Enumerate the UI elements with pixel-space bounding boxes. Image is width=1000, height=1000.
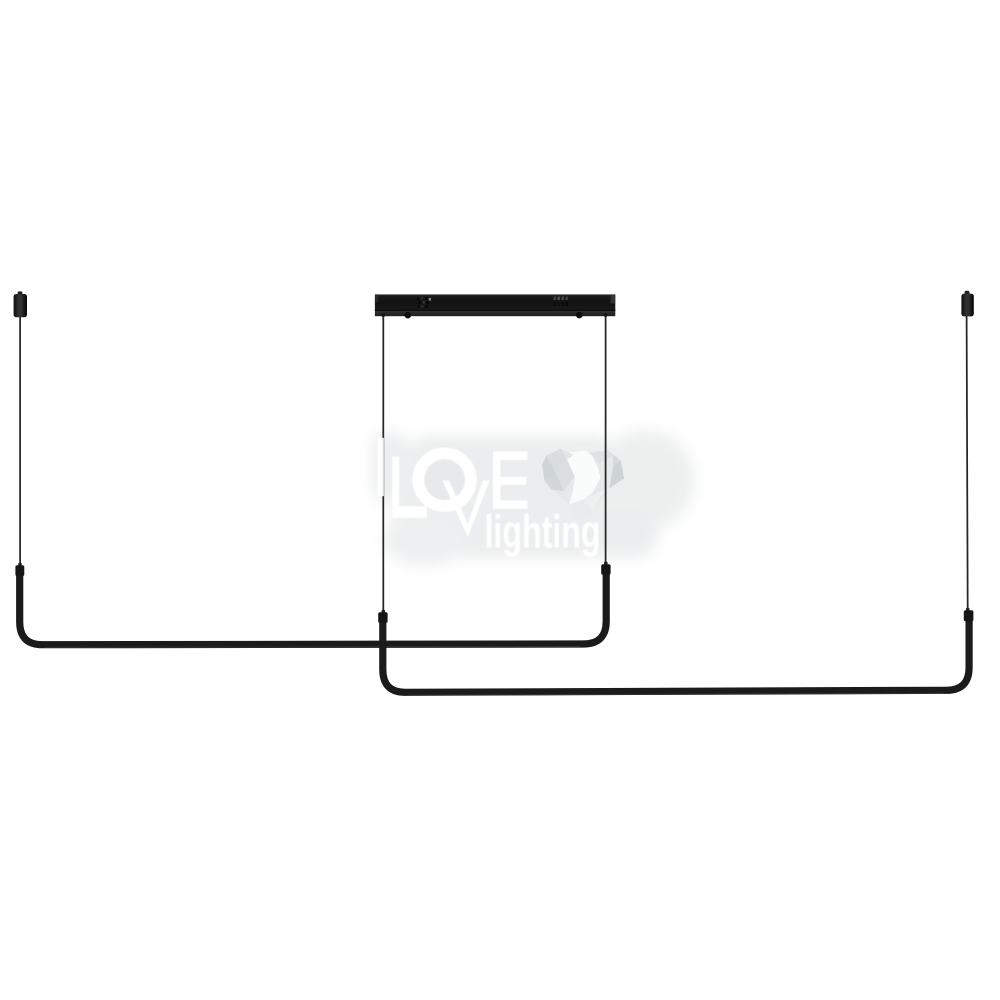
svg-text:lighting: lighting <box>485 506 601 558</box>
